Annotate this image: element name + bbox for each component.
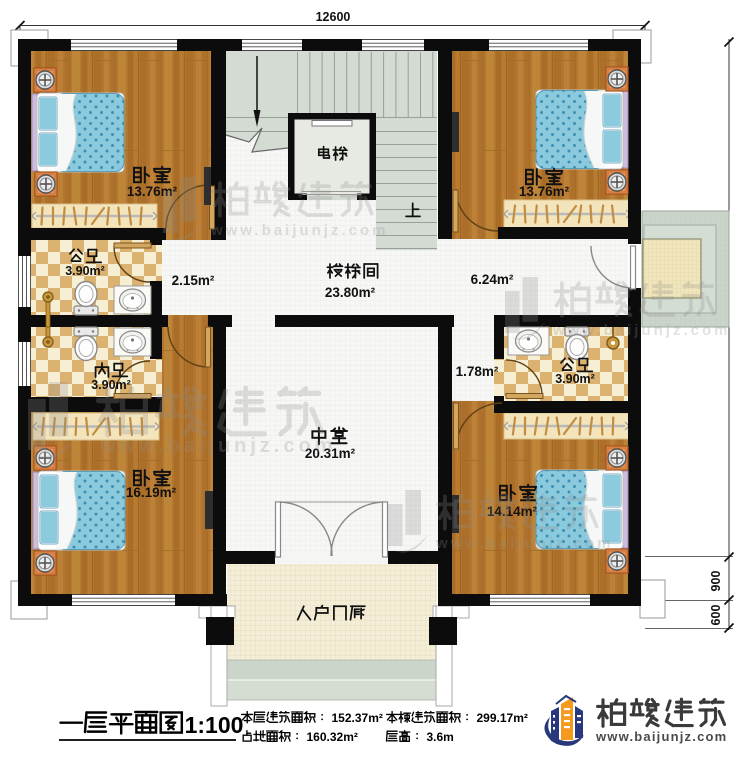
svg-text:900: 900 [709, 571, 723, 592]
svg-text:12600: 12600 [316, 10, 351, 24]
svg-text:2.15m²: 2.15m² [172, 273, 215, 288]
svg-text:160.32m²: 160.32m² [307, 730, 358, 744]
svg-text:1:100: 1:100 [185, 712, 244, 738]
svg-text:www.baijunjz.com: www.baijunjz.com [435, 535, 613, 552]
svg-text:3.90m²: 3.90m² [65, 264, 105, 278]
svg-text:152.37m²: 152.37m² [332, 711, 383, 725]
svg-text:600: 600 [709, 605, 723, 626]
svg-text:www.baijunjz.com: www.baijunjz.com [552, 322, 730, 339]
svg-text:299.17m²: 299.17m² [477, 711, 528, 725]
svg-text:23.80m²: 23.80m² [325, 285, 376, 300]
svg-text:www.baijunjz.com: www.baijunjz.com [210, 222, 388, 239]
svg-text:www.baijunjz.com: www.baijunjz.com [595, 729, 727, 744]
svg-text:3.90m²: 3.90m² [555, 372, 595, 386]
svg-text:1.78m²: 1.78m² [456, 364, 499, 379]
svg-text:13.76m²: 13.76m² [519, 184, 570, 199]
svg-text:3.6m: 3.6m [427, 730, 454, 744]
svg-text:6.24m²: 6.24m² [471, 272, 514, 287]
svg-text:www.baijunjz.com: www.baijunjz.com [99, 435, 337, 457]
svg-text:16.19m²: 16.19m² [126, 485, 177, 500]
svg-text:3.90m²: 3.90m² [91, 378, 131, 392]
